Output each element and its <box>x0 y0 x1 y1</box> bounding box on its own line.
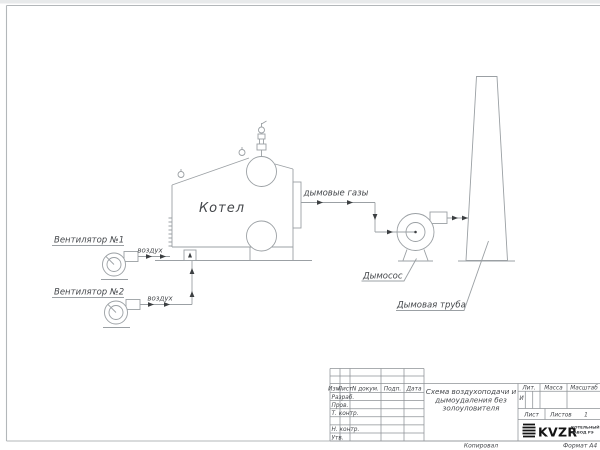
row-tcontr: Т. контр. <box>332 411 359 417</box>
boiler-label: Котел <box>199 201 245 216</box>
lit-value: И <box>519 396 524 402</box>
exhauster-center-dot <box>414 231 417 234</box>
col-data: Дата <box>405 386 421 392</box>
flue-duct-line <box>301 203 397 233</box>
title-block: Изм. Лист N докум. Подп. Дата Разраб. Пр… <box>328 369 600 442</box>
listov-value: 1 <box>584 413 588 419</box>
boiler: Котел <box>155 121 312 261</box>
flue-flow-arrows <box>317 200 393 234</box>
chimney-label: Дымовая труба <box>396 301 466 311</box>
fan1-label: Вентилятор №1 <box>54 236 124 246</box>
document-title-line3: золоуловителя <box>443 404 501 413</box>
row-ncontr: Н. контр. <box>332 427 360 433</box>
copied-label: Копировал <box>464 443 498 450</box>
drawing-sheet: Котел дымовые газы Дымосос Дымовая труба <box>0 0 600 450</box>
sheet-frame <box>7 6 600 442</box>
chimney-shape <box>466 77 508 261</box>
boiler-top-slope <box>172 158 249 185</box>
upper-drum <box>247 157 277 187</box>
schematic-canvas: Котел дымовые газы Дымосос Дымовая труба <box>0 0 600 450</box>
exhauster-stand <box>398 250 433 262</box>
company-logo: KVZR КОТЕЛЬНЫЙ ЗАВОД РЭ <box>523 425 600 440</box>
flue-gas-duct: дымовые газы <box>301 189 397 235</box>
lower-drum <box>247 221 277 251</box>
col-podp: Подп. <box>384 386 402 392</box>
fan1-outlet <box>124 252 138 262</box>
document-title: Схема воздухоподачи и дымоудаления без з… <box>426 387 517 413</box>
kvzr-coil-icon <box>523 425 536 437</box>
sheet-footer: Копировал Формат А4 <box>464 443 597 450</box>
chimney: Дымовая труба <box>396 77 515 311</box>
exhauster-outlet <box>430 212 447 224</box>
row-prov: Пров. <box>332 403 349 409</box>
boiler-top-right <box>275 164 293 169</box>
economizer <box>293 182 301 228</box>
air-inlet-box <box>184 250 196 261</box>
fan2-outlet <box>126 300 140 310</box>
fan1-air-label: воздух <box>137 247 163 255</box>
title-block-reserve-rows <box>330 369 424 377</box>
masshtab-header: Масштаб <box>570 385 598 391</box>
listov-label: Листов <box>549 413 572 419</box>
boiler-left-ticks <box>169 218 173 246</box>
massa-header: Масса <box>544 385 563 391</box>
exhauster-label: Дымосос <box>362 272 403 282</box>
col-list: Лист <box>337 386 353 392</box>
col-doc: N докум. <box>352 386 379 392</box>
lifting-lugs <box>178 147 245 178</box>
row-utv: Утв. <box>332 435 344 441</box>
flue-gases-label: дымовые газы <box>303 189 369 199</box>
drum-valve-assembly <box>257 121 267 157</box>
lit-header: Лит. <box>521 385 536 391</box>
fan2-label: Вентилятор №2 <box>54 288 124 298</box>
fan2-air-label: воздух <box>147 295 173 303</box>
page-edge <box>0 0 600 4</box>
format-label: Формат А4 <box>563 443 597 450</box>
list-label: Лист <box>523 413 539 419</box>
fan-1: Вентилятор №1 воздух <box>52 236 170 280</box>
row-razrab: Разраб. <box>332 395 355 401</box>
smoke-exhauster: Дымосос <box>362 212 469 282</box>
company-name-line2: ЗАВОД РЭ <box>571 430 594 435</box>
